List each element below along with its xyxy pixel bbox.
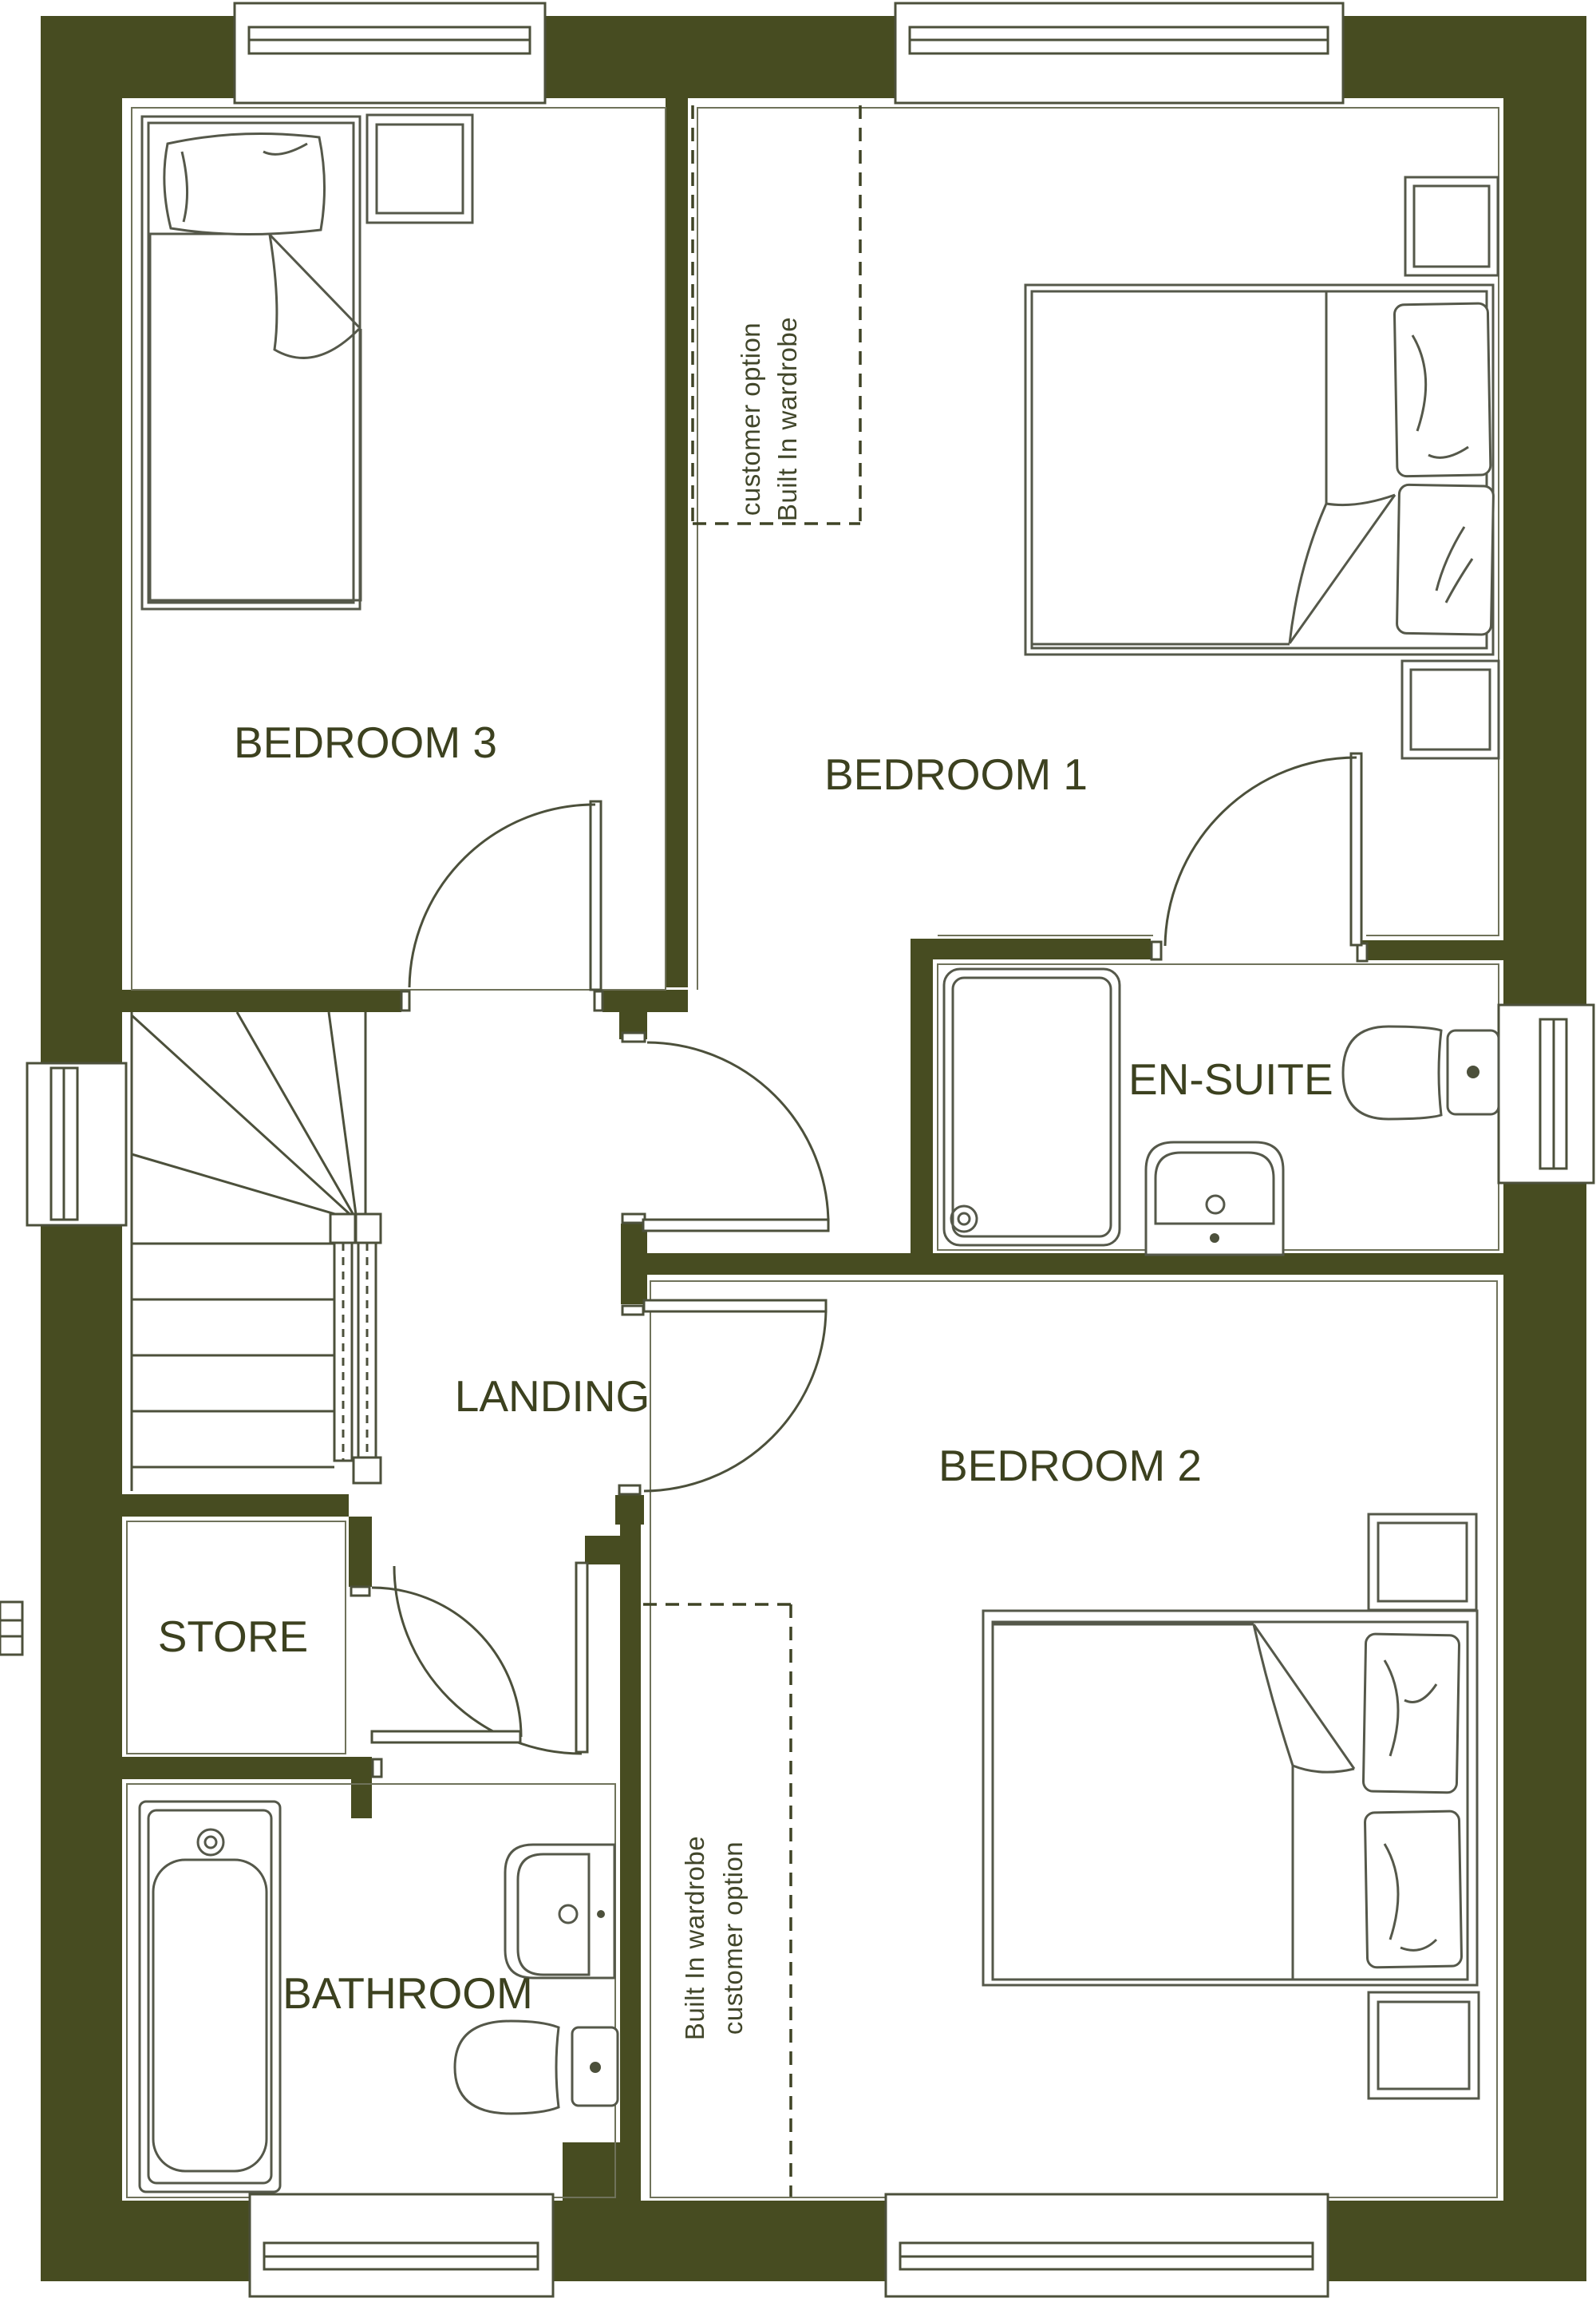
svg-text:EN-SUITE: EN-SUITE [1128, 1054, 1333, 1104]
svg-text:Built In wardrobe: Built In wardrobe [680, 1836, 709, 2040]
svg-text:BEDROOM 3: BEDROOM 3 [234, 718, 497, 767]
svg-text:BATHROOM: BATHROOM [282, 1968, 533, 2018]
svg-text:LANDING: LANDING [455, 1371, 650, 1421]
svg-text:customer option: customer option [736, 322, 765, 516]
svg-text:BEDROOM 2: BEDROOM 2 [938, 1441, 1202, 1490]
svg-text:STORE: STORE [158, 1612, 308, 1661]
svg-text:Built In wardrobe: Built In wardrobe [772, 317, 802, 521]
svg-text:customer option: customer option [718, 1841, 748, 2035]
svg-text:BEDROOM 1: BEDROOM 1 [824, 750, 1088, 799]
